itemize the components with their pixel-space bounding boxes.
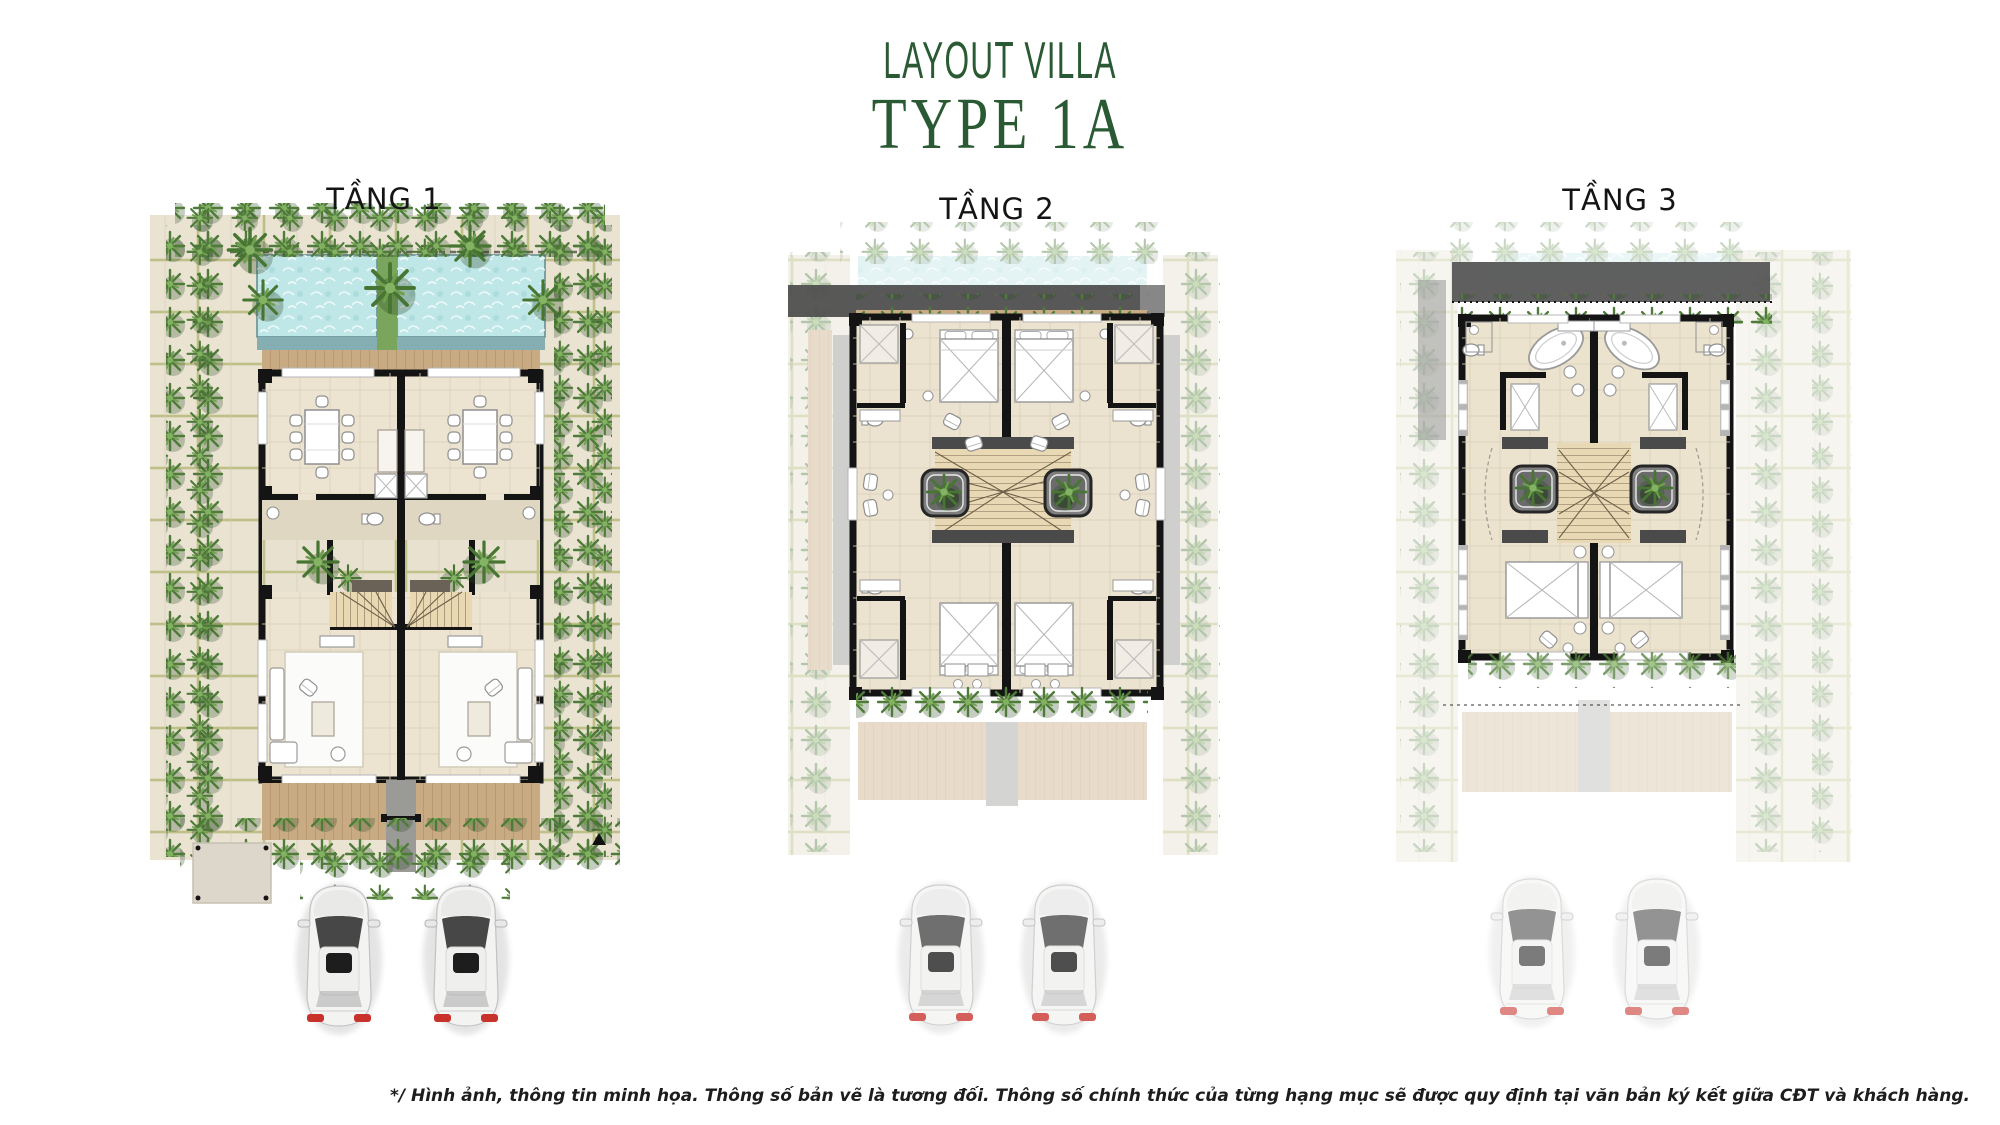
floor-plans-illustration [0,0,2000,1125]
floor-label-tang-1: TẦNG 1 [326,185,441,214]
floor-plan-3 [1396,222,1852,1028]
floor-label-tang-3: TẦNG 3 [1562,186,1677,215]
disclaimer-note: */ Hình ảnh, thông tin minh họa. Thông s… [390,1086,1970,1106]
plan3-building [1458,314,1734,663]
floor-plan-2 [788,222,1220,1034]
villa-type-subtitle: TYPE 1A [872,88,1129,162]
plan1-building [258,368,544,784]
plan3-cars [1489,876,1700,1028]
floor-label-tang-2: TẦNG 2 [939,195,1054,224]
plan2-building [848,313,1165,700]
layout-villa-sheet: LAYOUT VILLA TYPE 1A TẦNG 1 TẦNG 2 TẦNG … [0,0,2000,1125]
plan3-bottom-foliage [1468,652,1736,688]
page-title: LAYOUT VILLA [883,34,1116,86]
plan2-cars [898,882,1107,1034]
floor-plan-1 [150,203,620,1035]
plan1-side-pad [193,843,271,903]
plan1-cars [296,883,509,1035]
plan2-bottom-foliage [856,686,1148,720]
plan3-stairs [1557,443,1631,543]
